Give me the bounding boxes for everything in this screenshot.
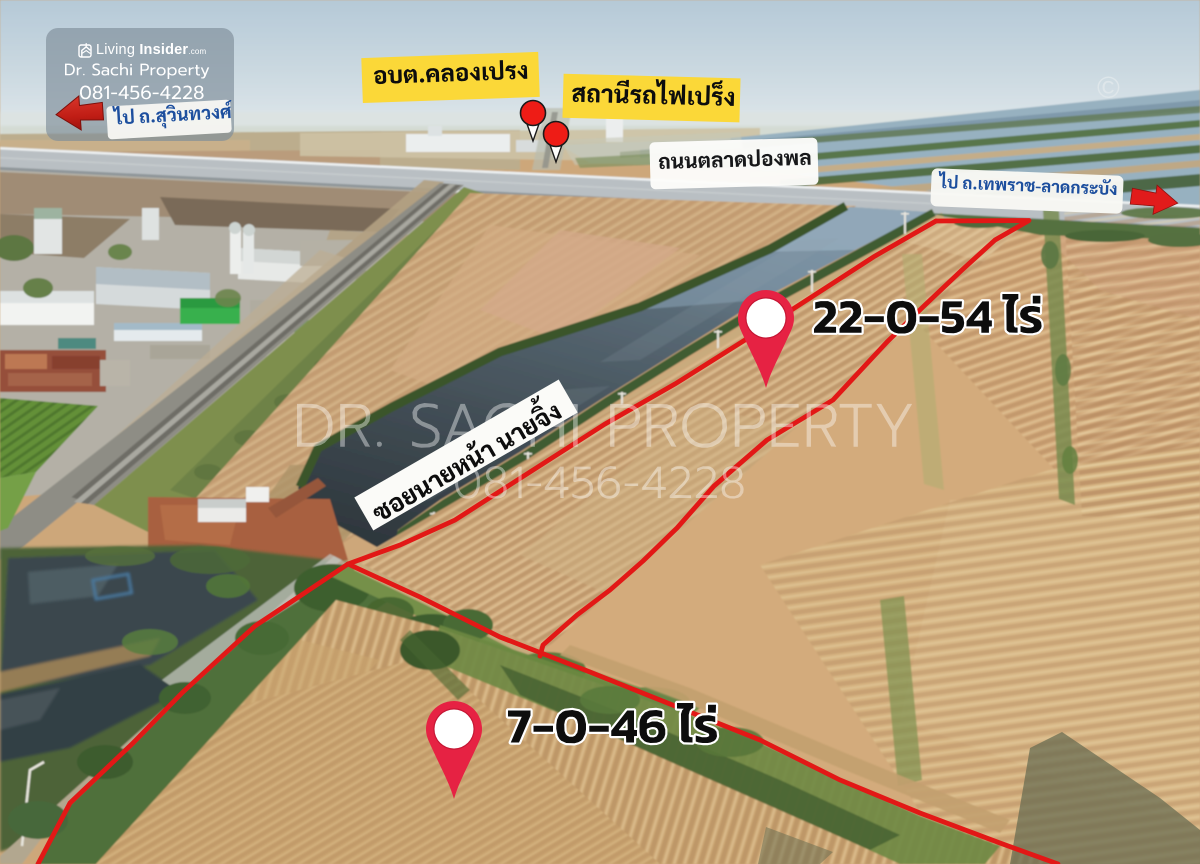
svg-text:©: ©	[1097, 70, 1120, 105]
